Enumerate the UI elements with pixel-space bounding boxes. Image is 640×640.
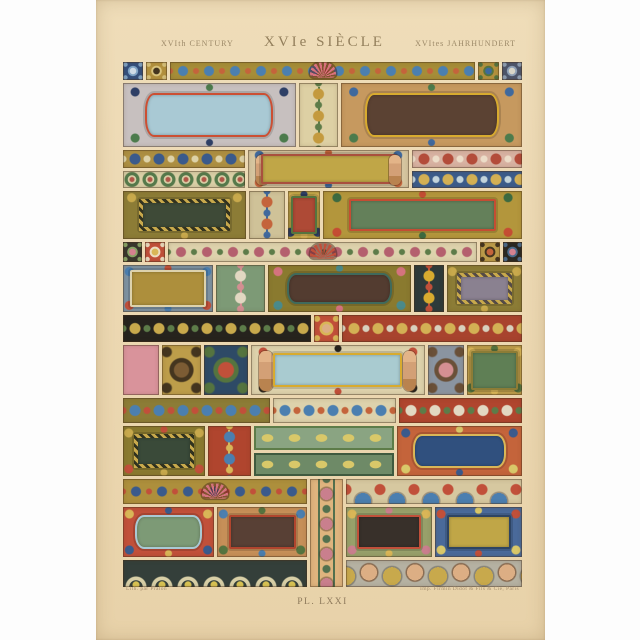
plate-row (123, 150, 522, 188)
photo-canvas: XVIth CENTURY XVIe SIÈCLE XVItes JAHRHUN… (0, 0, 640, 640)
plate-header: XVIth CENTURY XVIe SIÈCLE XVItes JAHRHUN… (123, 34, 522, 51)
cartouche-gold-panel-blue-frame (435, 507, 522, 557)
plate-row (123, 265, 522, 312)
plate-row (123, 398, 522, 423)
panel-green-leaf-frame (467, 345, 522, 395)
frieze-cherubs-shells (346, 560, 522, 587)
cartouche-inner-panel (413, 434, 505, 468)
panel-chevron-mauve (447, 265, 522, 312)
cartouche-inner-panel (145, 93, 273, 137)
strip-gold-coil-dark (414, 265, 444, 312)
cartouche-gold-frame-brown-panel (341, 83, 522, 147)
frieze-monogram-lower (254, 453, 394, 477)
plate-row (123, 315, 522, 342)
scroll-column-gold-serpent (299, 83, 338, 147)
bottom-left-cartouches (123, 507, 307, 557)
tile-pink-plain (123, 345, 159, 395)
bottom-right-stack (346, 479, 522, 587)
corner-tile-gold-rosette (146, 62, 167, 80)
frieze-monogram-upper (254, 426, 394, 450)
cartouche-herm-figures-blue-panel (251, 345, 425, 395)
niche-figure-on-red (288, 191, 320, 239)
tile-figure-pink-ribbon (428, 345, 464, 395)
plate-row (123, 479, 522, 587)
frieze-olive-cornucopia (123, 398, 270, 423)
cartouche-brown-red-frame (217, 507, 308, 557)
cartouche-olive-pink-scrolls (268, 265, 411, 312)
acanthus-column-green (216, 265, 265, 312)
frieze-flower-garland-basket (168, 242, 477, 262)
frieze-gold-blue-cross (123, 150, 245, 168)
frieze-black-gold-scrolls (123, 315, 311, 342)
frieze-pink-palmette (412, 150, 522, 168)
ornament-plate (123, 62, 522, 590)
frieze-blue-dolphins-mask (273, 398, 396, 423)
frieze-arches-dark (123, 560, 307, 587)
figural-frieze-nudes-tablet (248, 150, 409, 188)
tile-cherub-on-red (314, 315, 338, 342)
cartouche-inner-panel (273, 353, 402, 387)
cartouche-inner-panel (357, 515, 421, 549)
cartouche-inner-panel (365, 93, 499, 137)
panel-green-red-strapwork (323, 191, 522, 239)
frieze-blue-shells (346, 479, 522, 504)
panel-gold-scallop-border (123, 265, 213, 312)
tile-gold-mask (162, 345, 202, 395)
plate-number: PL. LXXI (123, 597, 522, 607)
cartouche-red-strap-blue-panel (123, 83, 296, 147)
corner-tile-gold-cross (478, 62, 499, 80)
tile-dark-flower (123, 242, 142, 262)
frieze-shell-scroll-left (123, 479, 307, 504)
frieze-blue-acanthus (412, 171, 522, 189)
plate-row (123, 242, 522, 262)
top-frieze-shell-scrolls (170, 62, 475, 80)
vertical-strapwork-strip (310, 479, 342, 587)
cartouche-inner-panel (229, 515, 296, 549)
right-frieze-stack (412, 150, 522, 188)
corner-tile-blue-floral (123, 62, 143, 80)
scroll-column-orange-blue (249, 191, 285, 239)
plate-credits: Lith. par Pralon Imp. Firmin Didot & Fil… (123, 586, 522, 592)
cartouche-inner-panel (135, 515, 202, 549)
ornament-lion-strapwork (208, 426, 251, 476)
plate-row (123, 426, 522, 476)
print-paper: XVIth CENTURY XVIe SIÈCLE XVItes JAHRHUN… (96, 0, 545, 640)
plate-row (123, 62, 522, 80)
cartouche-inner-panel (457, 273, 513, 305)
header-century-english: XVIth CENTURY (161, 39, 234, 48)
plate-row (123, 345, 522, 395)
tile-red-urn (145, 242, 165, 262)
lithographer-credit: Lith. par Pralon (126, 586, 167, 592)
panel-chevron-dark-green (123, 191, 246, 239)
cartouche-inner-panel (291, 196, 318, 233)
cartouche-inner-panel (287, 273, 393, 305)
cartouche-inner-panel (130, 270, 206, 307)
cartouche-inner-panel (261, 154, 396, 184)
monogram-frieze-stack (254, 426, 394, 476)
cartouche-inner-panel (349, 199, 496, 232)
tile-blue-cherry (204, 345, 248, 395)
cartouche-inner-panel (471, 351, 518, 390)
frieze-green-rings (123, 171, 245, 189)
plate-row (123, 191, 522, 239)
bottom-left-stack (123, 479, 307, 587)
frieze-red-white-scrolls (399, 398, 522, 423)
plate-row (123, 83, 522, 147)
cartouche-inner-panel (134, 434, 195, 468)
cartouche-inner-panel (447, 515, 511, 549)
printer-credit: Imp. Firmin Didot & Fils & Cie, Paris (420, 586, 519, 592)
tile-gold-fruit (480, 242, 500, 262)
cartouche-dark-panel-masks (346, 507, 433, 557)
tile-black-rosette (503, 242, 522, 262)
cartouche-inner-panel (139, 199, 230, 232)
left-frieze-stack (123, 150, 245, 188)
panel-laurel-dark-green (123, 426, 205, 476)
corner-tile-slate-leaf (502, 62, 522, 80)
bottom-right-cartouches (346, 507, 522, 557)
frieze-red-gold-scrolls (342, 315, 522, 342)
cartouche-blue-panel-red-strap (397, 426, 522, 476)
page-title: XVIe SIÈCLE (264, 34, 385, 51)
cartouche-green-blue-strap (123, 507, 214, 557)
header-century-german: XVItes JAHRHUNDERT (415, 39, 516, 48)
